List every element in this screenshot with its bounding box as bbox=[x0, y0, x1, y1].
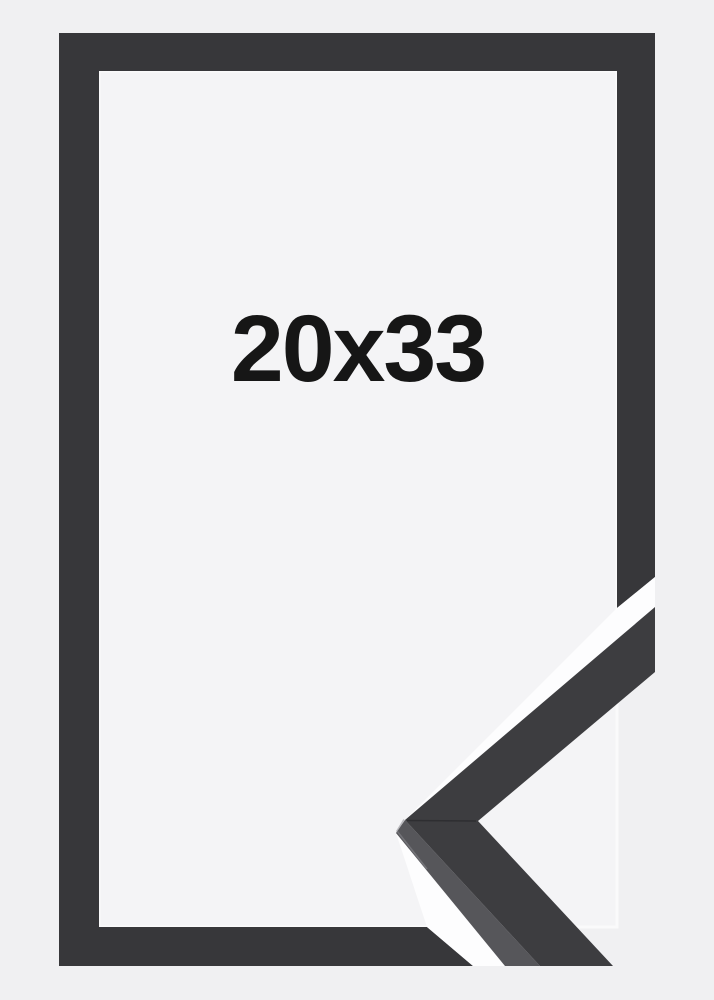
frame-inner-panel bbox=[99, 71, 617, 927]
corner-miter-seam bbox=[407, 821, 476, 822]
product-image-frame: 20x33 bbox=[0, 0, 714, 1000]
size-label: 20x33 bbox=[99, 302, 617, 397]
frame-illustration bbox=[0, 0, 714, 1000]
